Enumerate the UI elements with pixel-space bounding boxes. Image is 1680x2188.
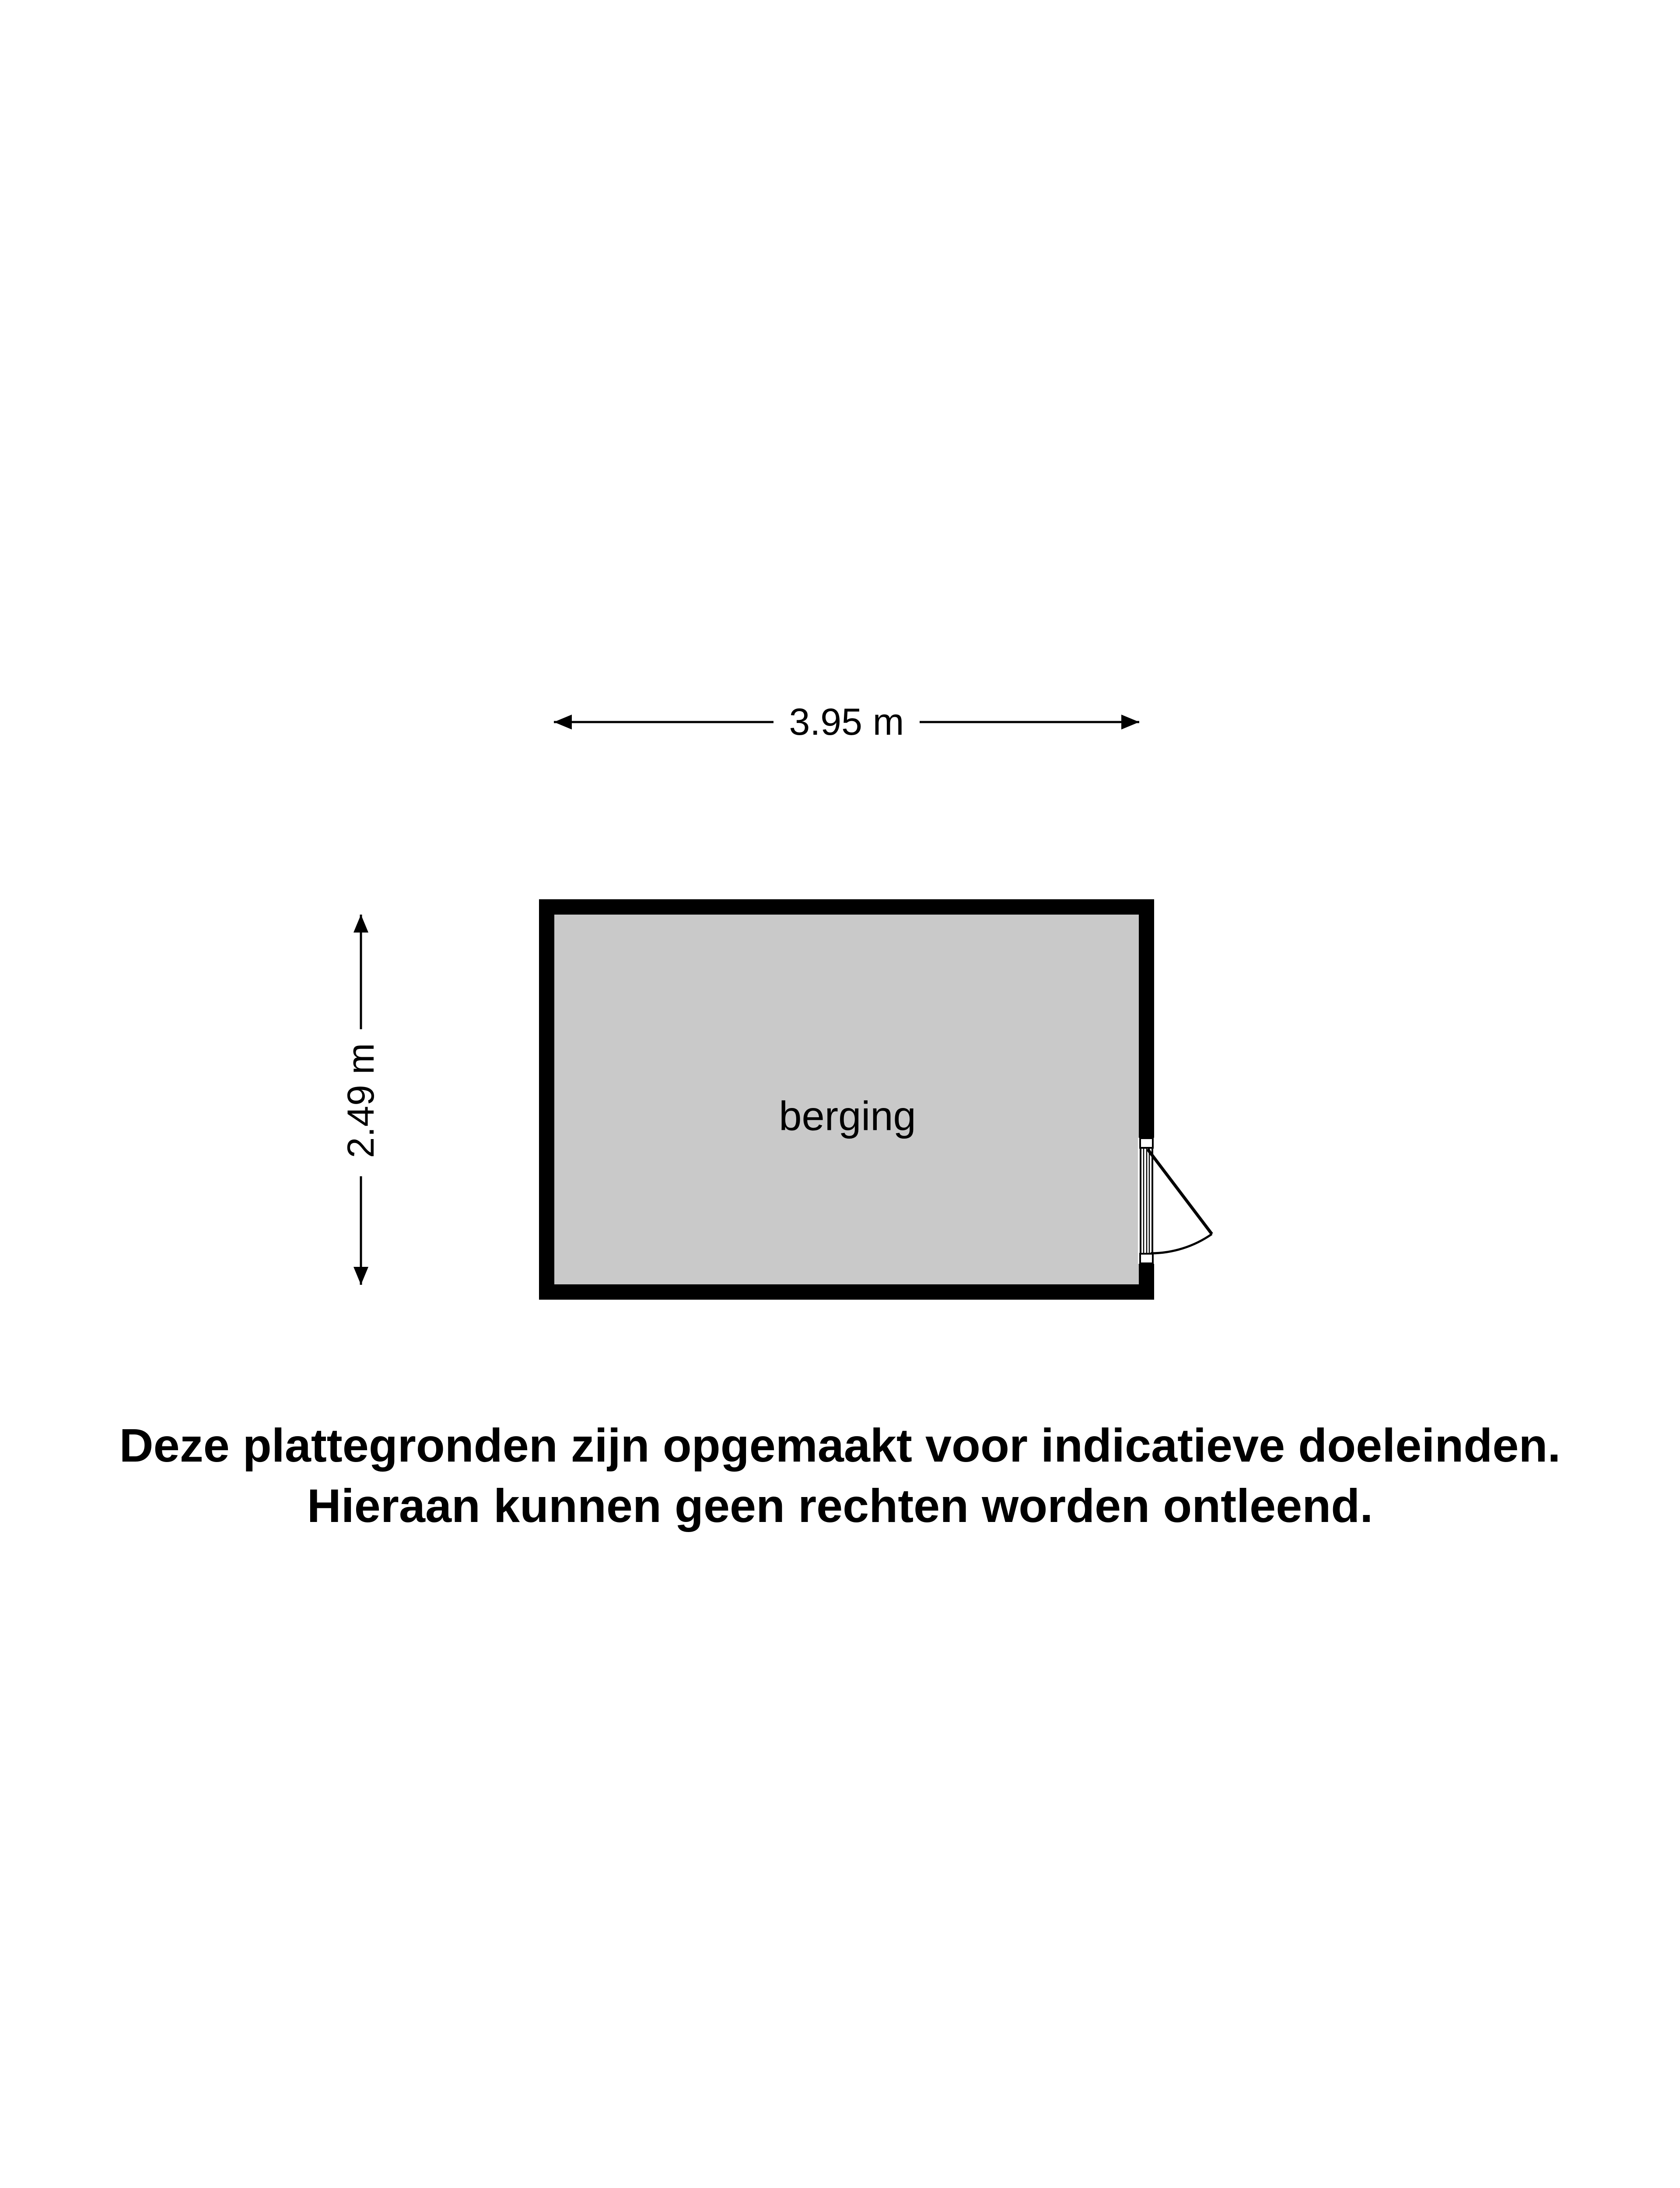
room-berging: berging	[539, 899, 1154, 1300]
height-dimension-label: 2.49 m	[340, 1043, 382, 1158]
disclaimer-line-1: Deze plattegronden zijn opgemaakt voor i…	[119, 1419, 1561, 1472]
room-label: berging	[779, 1093, 916, 1139]
door-jamb-top	[1140, 1138, 1153, 1148]
width-dimension-label: 3.95 m	[789, 701, 904, 743]
disclaimer-line-2: Hieraan kunnen geen rechten worden ontle…	[307, 1479, 1373, 1532]
door-jamb-bottom	[1140, 1254, 1153, 1263]
floorplan-canvas: 3.95 m 2.49 m berging Deze plattegronden…	[0, 0, 1680, 2188]
